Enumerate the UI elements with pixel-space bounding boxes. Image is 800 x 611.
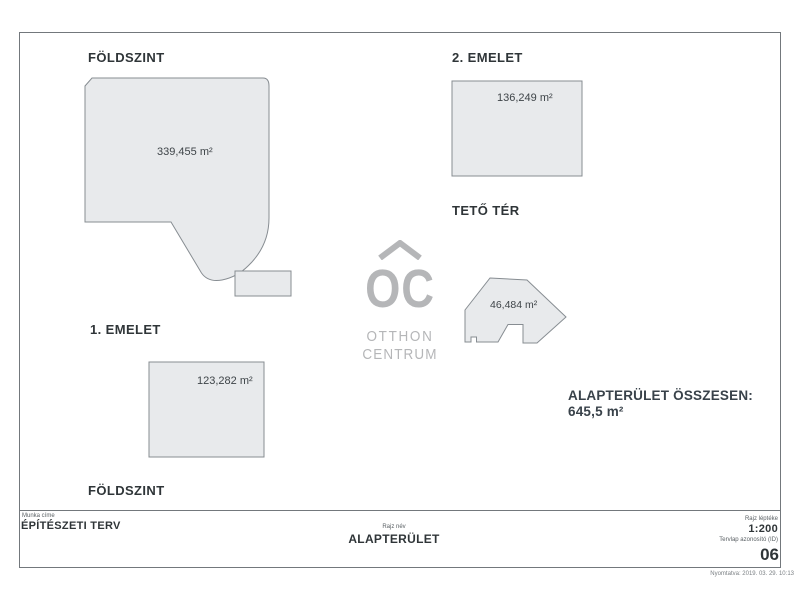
first-floor-heading: 1. EMELET [90,322,161,337]
drawing-name-label: Rajz név [334,524,454,530]
roof-chevron-icon [346,240,454,260]
watermark-word-centrum: CENTRUM [350,348,450,363]
watermark-word-otthon: OTTHON [350,330,450,345]
printed-timestamp: Nyomtatva: 2019. 03. 29. 10:13 [710,571,794,577]
total-area-summary: ALAPTERÜLET ÖSSZESEN: 645,5 m² [568,388,753,420]
drawing-name: ALAPTERÜLET [334,532,454,546]
ground-floor-annex-shape [235,271,291,296]
work-title: ÉPÍTÉSZETI TERV [21,520,121,532]
scale-label: Rajz léptéke [745,516,778,522]
total-area-value: 645,5 m² [568,404,753,420]
roof-space-heading: TETŐ TÉR [452,203,519,218]
watermark-initials: OC [355,262,446,316]
second-floor-area-value: 136,249 m² [497,92,553,104]
work-title-label: Munka címe [22,513,55,519]
roof-space-area-value: 46,484 m² [490,299,537,311]
plan-sheet: FÖLDSZINT 2. EMELET TETŐ TÉR 1. EMELET F… [0,0,800,611]
total-area-title: ALAPTERÜLET ÖSSZESEN: [568,388,753,404]
ground-floor-area-value: 339,455 m² [157,146,213,158]
ground-floor-heading: FÖLDSZINT [88,50,165,65]
sheet-id-label: Tervlap azonosító (ID) [719,537,778,543]
scale-value: 1:200 [748,523,778,535]
title-block-divider [19,510,781,511]
first-floor-area-value: 123,282 m² [197,375,253,387]
ground-floor-shape [85,78,269,281]
sheet-id-value: 06 [760,545,779,565]
second-floor-heading: 2. EMELET [452,50,523,65]
otthon-centrum-watermark: OC OTTHON CENTRUM [346,240,454,363]
ground-floor-heading-bottom: FÖLDSZINT [88,483,165,498]
